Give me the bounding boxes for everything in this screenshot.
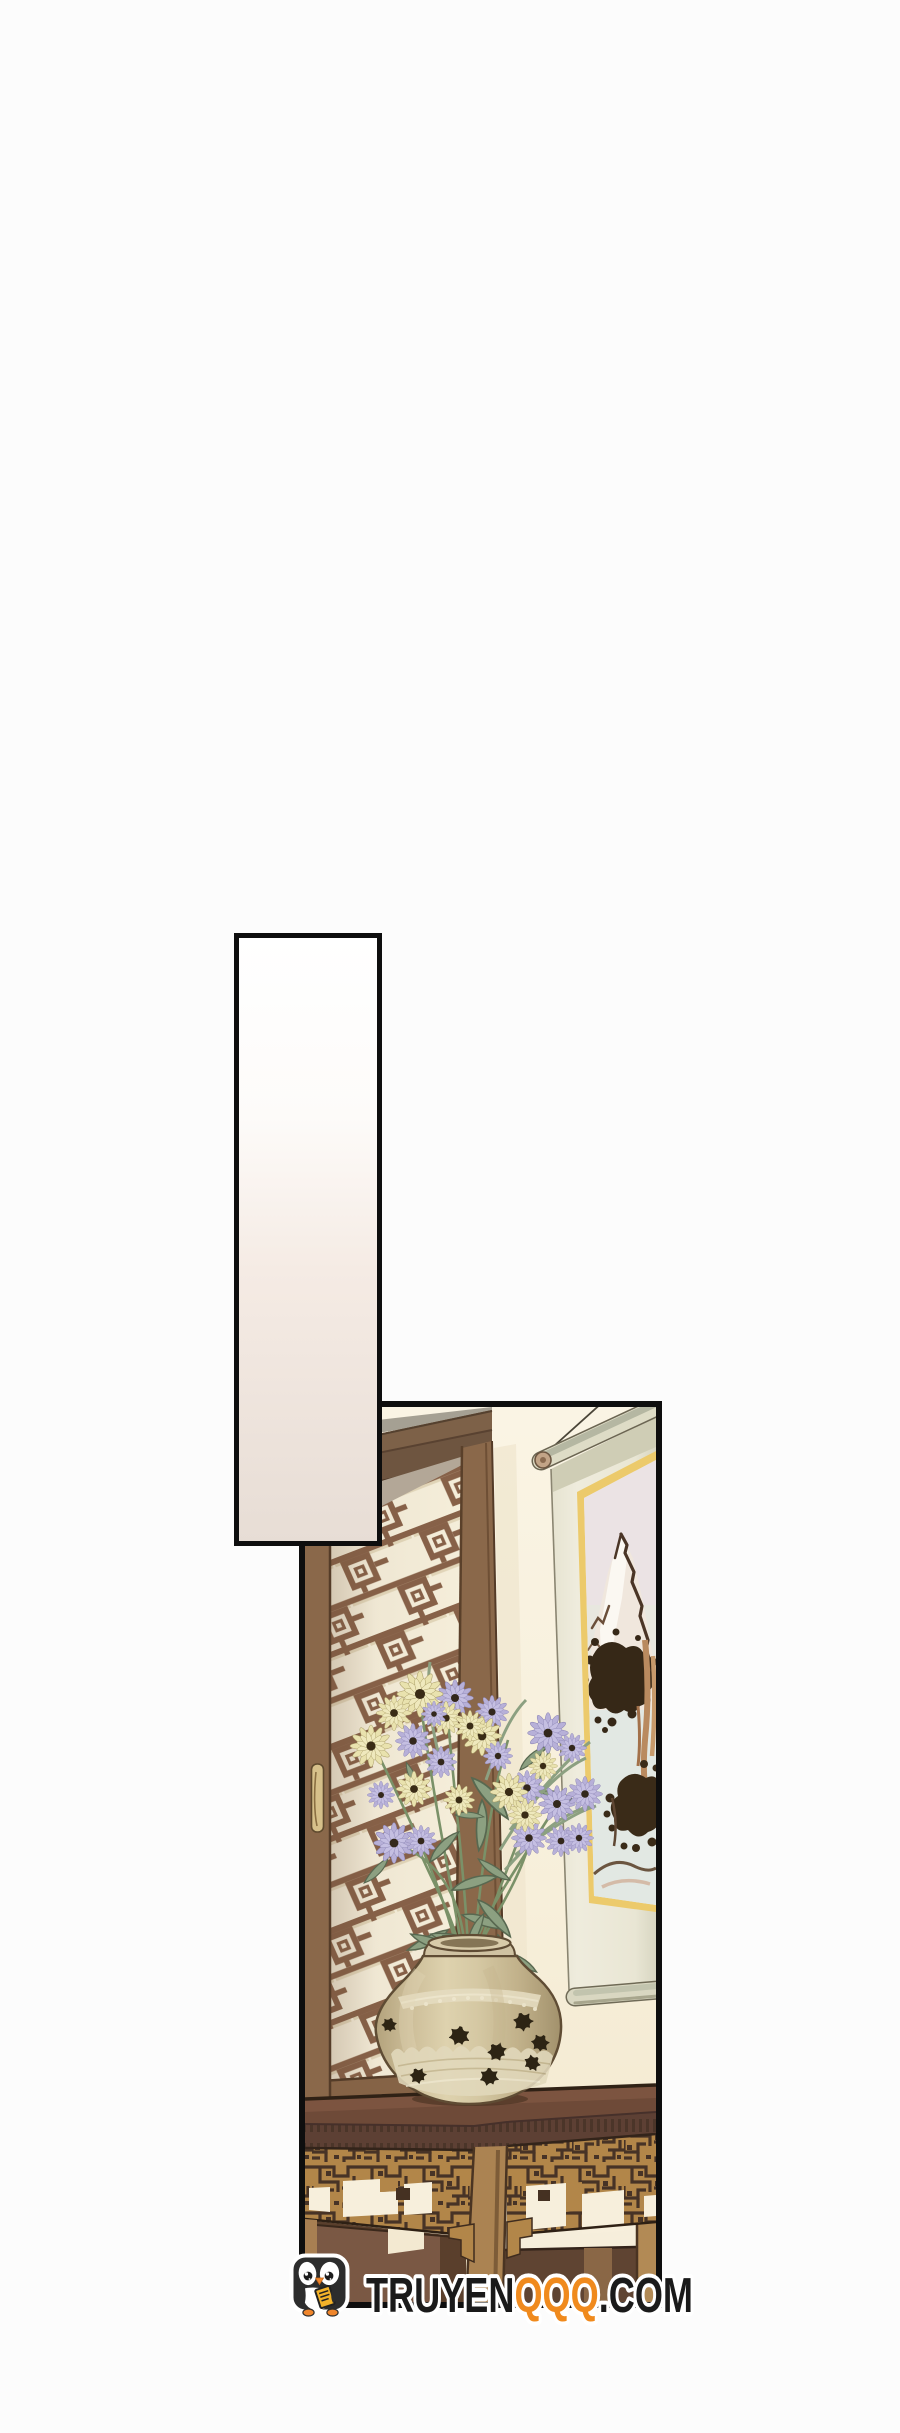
svg-text:TRUYENQQQ.COM: TRUYENQQQ.COM [366, 2269, 693, 2323]
